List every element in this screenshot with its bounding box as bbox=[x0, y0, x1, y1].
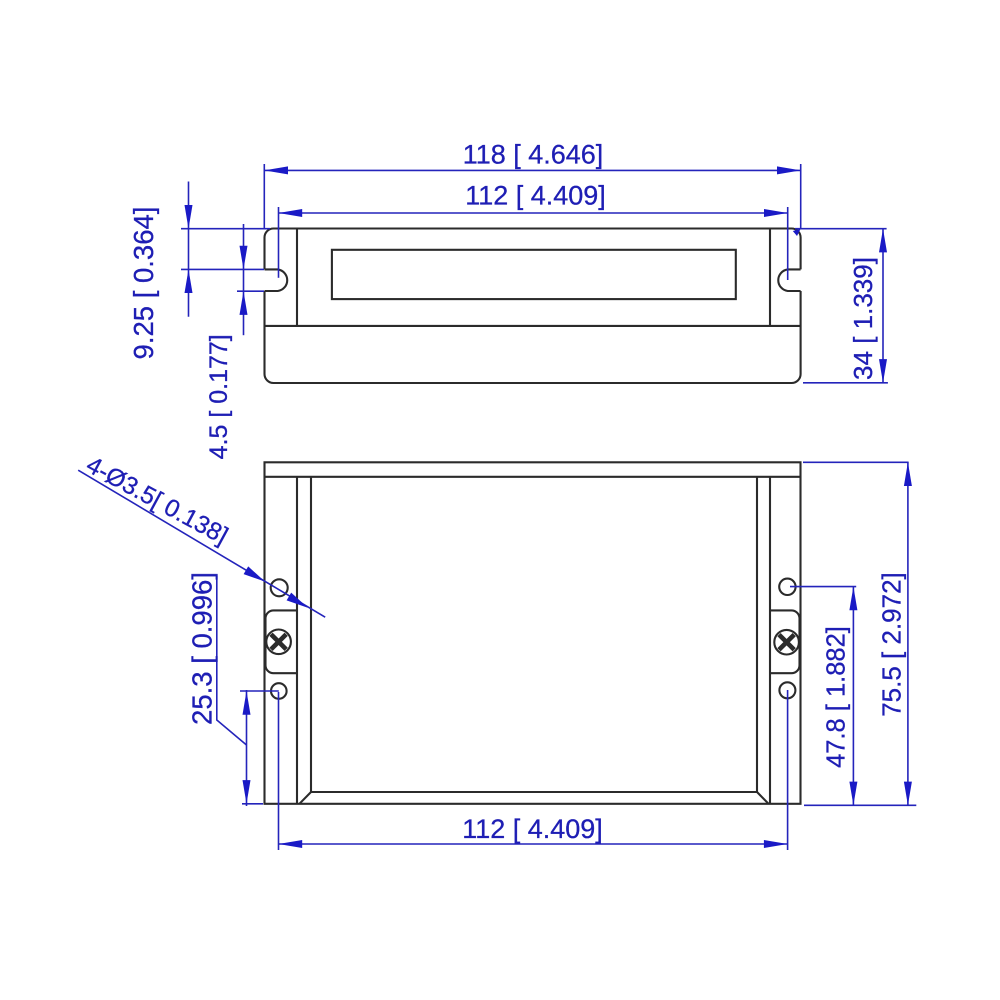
svg-text:25.3 [ 0.996]: 25.3 [ 0.996] bbox=[187, 572, 218, 725]
svg-text:75.5 [ 2.972]: 75.5 [ 2.972] bbox=[877, 572, 907, 717]
svg-text:4-Ø3.5[ 0.138]: 4-Ø3.5[ 0.138] bbox=[82, 452, 233, 550]
svg-text:112 [ 4.409]: 112 [ 4.409] bbox=[465, 181, 606, 211]
svg-text:112 [ 4.409]: 112 [ 4.409] bbox=[462, 814, 603, 844]
svg-text:4.5 [ 0.177]: 4.5 [ 0.177] bbox=[205, 334, 233, 459]
svg-text:118 [ 4.646]: 118 [ 4.646] bbox=[463, 140, 604, 170]
svg-text:9.25 [ 0.364]: 9.25 [ 0.364] bbox=[128, 207, 159, 360]
svg-text:34 [ 1.339]: 34 [ 1.339] bbox=[848, 257, 878, 380]
svg-text:47.8 [ 1.882]: 47.8 [ 1.882] bbox=[823, 626, 851, 768]
